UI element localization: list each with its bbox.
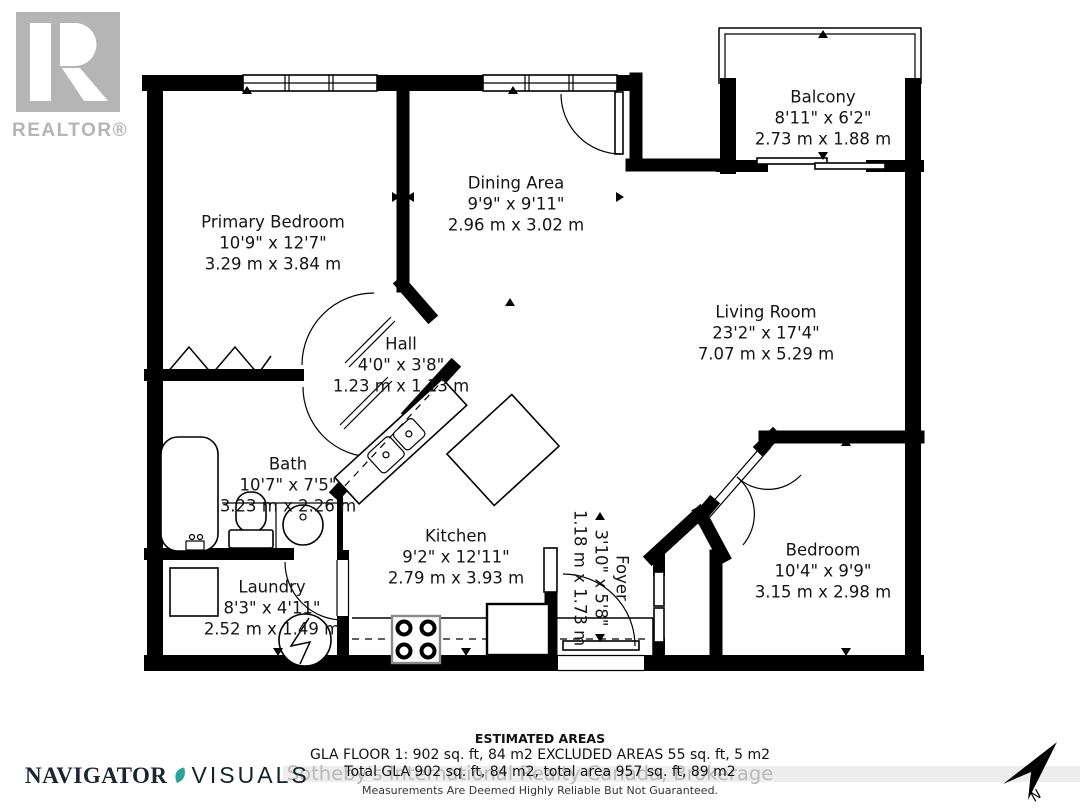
room-label-kitchen: Kitchen 9'2" x 12'11" 2.79 m x 3.93 m [388,526,524,589]
floorplan-page: REALTOR® [0,0,1080,810]
room-dims-metric: 7.07 m x 5.29 m [698,344,834,365]
room-name: Bedroom [755,540,891,561]
room-dims-metric: 3.23 m x 2.26 m [220,496,356,517]
visuals-wordmark: VISUALS [192,762,310,789]
bathtub-icon [161,437,218,551]
sliding-door-icon [815,163,885,169]
floorplan-drawing [0,0,1080,810]
room-dims-metric: 3.29 m x 3.84 m [201,254,345,275]
room-label-foyer: Foyer 3'10" x 5'8" 1.18 m x 1.73 m [570,510,633,646]
pantry-icon [544,548,557,592]
room-label-laundry: Laundry 8'3" x 4'11" 2.52 m x 1.49 m [204,577,340,640]
room-dims-metric: 2.96 m x 3.02 m [448,215,584,236]
room-label-bedroom: Bedroom 10'4" x 9'9" 3.15 m x 2.98 m [755,540,891,603]
room-dims-imperial: 8'3" x 4'11" [204,598,340,619]
room-dims-imperial: 23'2" x 17'4" [698,323,834,344]
room-dims-metric: 2.79 m x 3.93 m [388,568,524,589]
room-name: Laundry [204,577,340,598]
room-label-primary-bedroom: Primary Bedroom 10'9" x 12'7" 3.29 m x 3… [201,212,345,275]
room-label-living-room: Living Room 23'2" x 17'4" 7.07 m x 5.29 … [698,302,834,365]
leaf-icon [173,767,187,784]
room-label-bath: Bath 10'7" x 7'5" 3.23 m x 2.26 m [220,454,356,517]
areas-title: ESTIMATED AREAS [0,731,1080,746]
areas-line1: GLA FLOOR 1: 902 sq. ft, 84 m2 EXCLUDED … [0,747,1080,763]
room-label-hall: Hall 4'0" x 3'8" 1.23 m x 1.13 m [333,334,469,397]
room-dims-imperial: 10'4" x 9'9" [755,561,891,582]
room-dims-imperial: 10'9" x 12'7" [201,233,345,254]
room-dims-imperial: 10'7" x 7'5" [220,475,356,496]
room-name: Foyer [612,510,633,646]
realtor-r-icon [16,12,120,112]
room-dims-metric: 1.18 m x 1.73 m [570,510,591,646]
room-dims-imperial: 4'0" x 3'8" [333,355,469,376]
balcony-door-icon [561,92,623,154]
room-name: Kitchen [388,526,524,547]
room-label-dining-area: Dining Area 9'9" x 9'11" 2.96 m x 3.02 m [448,173,584,236]
bedroom-closet-door-icons [704,441,801,545]
room-dims-metric: 2.73 m x 1.88 m [755,129,891,150]
room-name: Dining Area [448,173,584,194]
stove-icon [392,616,440,663]
room-name: Primary Bedroom [201,212,345,233]
fridge-icon [487,604,549,655]
room-dims-imperial: 9'2" x 12'11" [388,547,524,568]
kitchen-island-icon [447,394,559,505]
room-name: Balcony [755,87,891,108]
room-dims-metric: 1.23 m x 1.13 m [333,376,469,397]
navigator-wordmark: NAVIGATOR [25,763,168,789]
room-dims-imperial: 9'9" x 9'11" [448,194,584,215]
realtor-wordmark: REALTOR® [12,120,124,142]
room-dims-metric: 2.52 m x 1.49 m [204,619,340,640]
room-dims-metric: 3.15 m x 2.98 m [755,582,891,603]
room-name: Hall [333,334,469,355]
room-dims-imperial: 3'10" x 5'8" [591,510,612,646]
room-label-balcony: Balcony 8'11" x 6'2" 2.73 m x 1.88 m [755,87,891,150]
room-name: Living Room [698,302,834,323]
navigator-visuals-logo: NAVIGATOR VISUALS [25,762,310,789]
realtor-logo: REALTOR® [12,12,124,142]
compass-north-icon: N [995,738,1070,806]
room-dims-imperial: 8'11" x 6'2" [755,108,891,129]
room-name: Bath [220,454,356,475]
